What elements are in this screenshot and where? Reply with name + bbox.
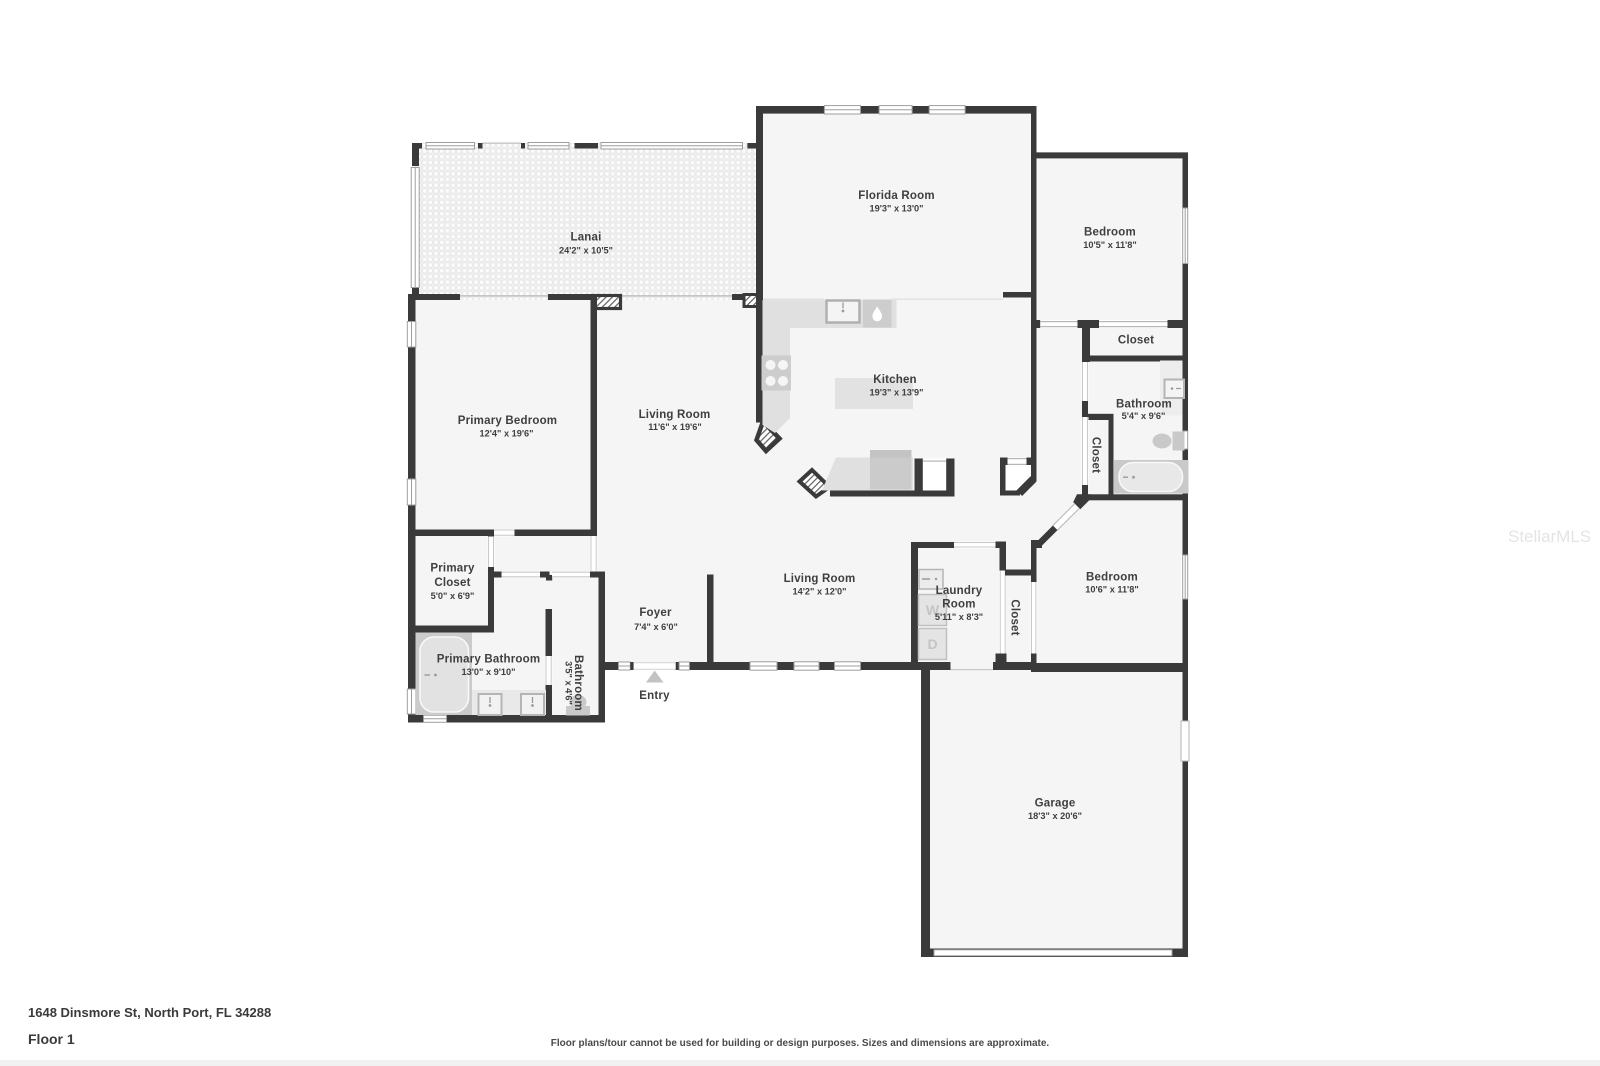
svg-text:5'4" x 9'6": 5'4" x 9'6" (1122, 411, 1166, 421)
svg-text:Room: Room (942, 599, 975, 611)
svg-text:Floor 1: Floor 1 (28, 1031, 75, 1047)
svg-text:13'0" x 9'10": 13'0" x 9'10" (462, 667, 516, 677)
svg-text:19'3" x 13'0": 19'3" x 13'0" (870, 204, 924, 214)
svg-text:Lanai: Lanai (570, 232, 601, 244)
svg-text:Bathroom: Bathroom (1116, 399, 1172, 411)
svg-text:Living Room: Living Room (784, 573, 856, 585)
svg-text:5'0" x 6'9": 5'0" x 6'9" (431, 591, 475, 601)
svg-text:Florida Room: Florida Room (858, 190, 935, 202)
svg-text:11'6" x 19'6": 11'6" x 19'6" (648, 422, 701, 432)
svg-text:3'5" x 4'6": 3'5" x 4'6" (564, 661, 574, 705)
svg-text:Closet: Closet (1118, 335, 1154, 347)
svg-text:1648 Dinsmore St, North Port,: 1648 Dinsmore St, North Port, FL 34288 (28, 1005, 271, 1020)
svg-text:StellarMLS: StellarMLS (1508, 527, 1591, 546)
svg-text:Primary Bedroom: Primary Bedroom (458, 415, 558, 427)
svg-text:Kitchen: Kitchen (873, 374, 917, 386)
svg-text:10'5" x 11'8": 10'5" x 11'8" (1083, 240, 1136, 250)
svg-text:Foyer: Foyer (639, 607, 672, 619)
svg-text:Bedroom: Bedroom (1084, 226, 1136, 238)
svg-text:14'2" x 12'0": 14'2" x 12'0" (793, 586, 847, 596)
svg-text:24'2" x 10'5": 24'2" x 10'5" (559, 246, 613, 256)
svg-text:19'3" x 13'9": 19'3" x 13'9" (870, 388, 924, 398)
svg-text:Closet: Closet (434, 577, 470, 589)
svg-text:Primary Bathroom: Primary Bathroom (437, 654, 541, 666)
svg-text:18'3" x 20'6": 18'3" x 20'6" (1028, 811, 1082, 821)
svg-text:Bedroom: Bedroom (1086, 571, 1138, 583)
svg-text:Floor plans/tour cannot be use: Floor plans/tour cannot be used for buil… (551, 1038, 1050, 1049)
svg-text:Garage: Garage (1035, 798, 1076, 810)
svg-text:Closet: Closet (1090, 437, 1102, 473)
svg-text:Closet: Closet (1009, 599, 1021, 635)
svg-text:Living Room: Living Room (639, 409, 711, 421)
svg-text:Primary: Primary (430, 563, 475, 575)
svg-text:12'4" x 19'6": 12'4" x 19'6" (480, 429, 534, 439)
svg-text:D: D (927, 636, 937, 652)
svg-text:5'11" x 8'3": 5'11" x 8'3" (935, 612, 983, 622)
svg-text:10'6" x 11'8": 10'6" x 11'8" (1085, 585, 1138, 595)
svg-text:Laundry: Laundry (936, 585, 983, 597)
svg-text:Entry: Entry (639, 690, 670, 702)
svg-text:7'4" x 6'0": 7'4" x 6'0" (634, 622, 678, 632)
